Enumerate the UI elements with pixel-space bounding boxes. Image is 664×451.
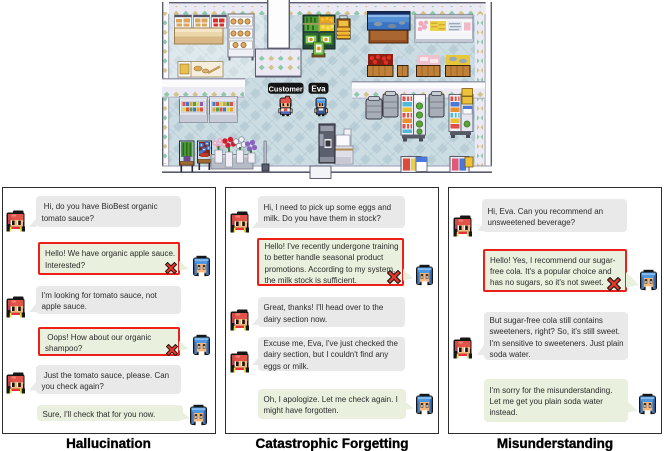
- svg-text:Eva: Eva: [311, 85, 326, 94]
- svg-text:Customer: Customer: [269, 84, 303, 93]
